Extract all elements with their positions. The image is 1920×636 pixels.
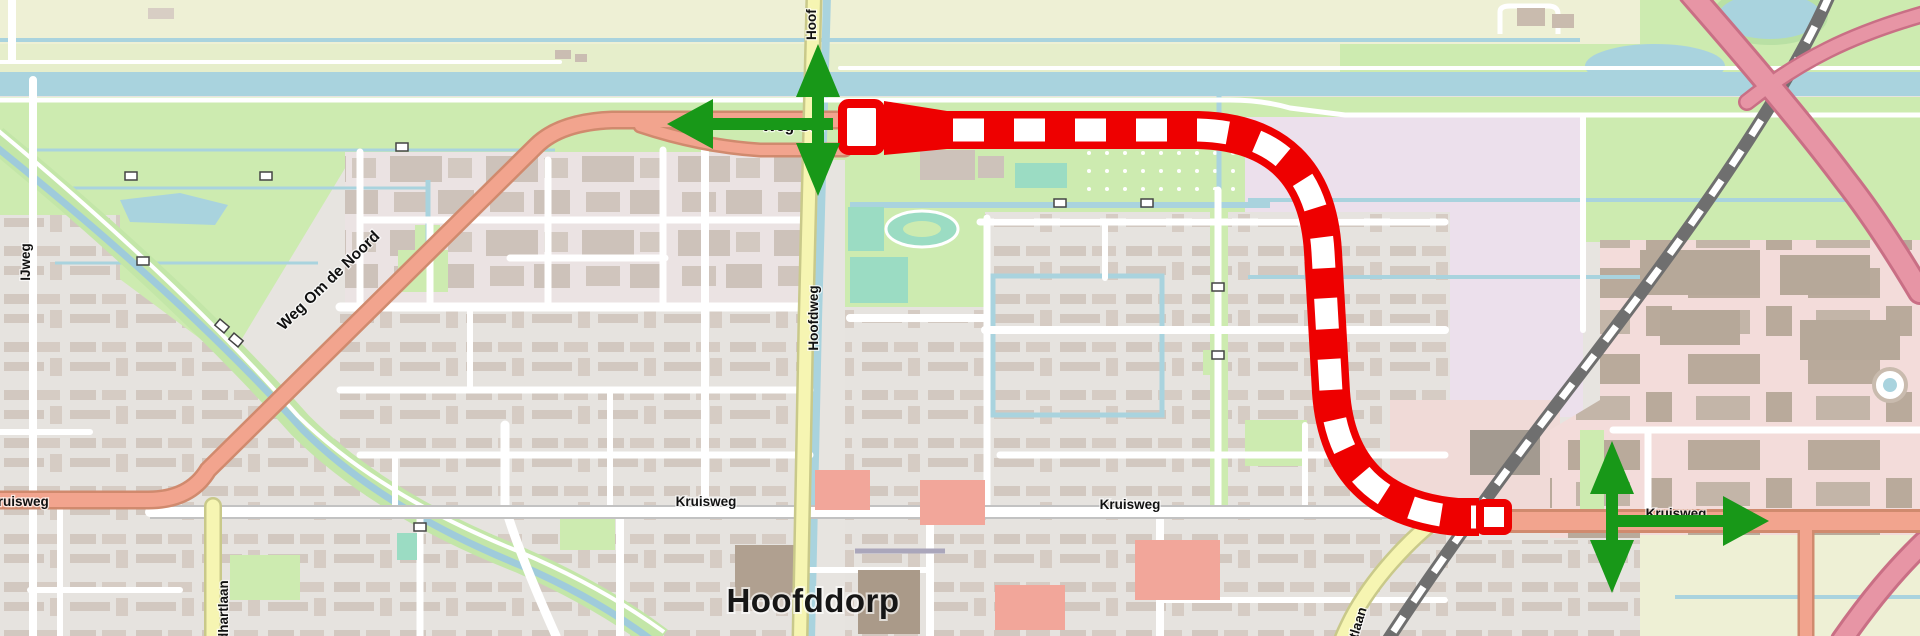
road-label-goedhartlaan: dhartlaan xyxy=(216,580,231,636)
map-canvas[interactable]: Hoof Hoofdweg IJweg Weg Om de Noord Weg … xyxy=(0,0,1920,636)
city-label: Hoofddorp xyxy=(726,582,899,619)
road-label-kruisweg-center-1: Kruisweg xyxy=(676,494,737,509)
map-svg: Hoof Hoofdweg IJweg Weg Om de Noord Weg … xyxy=(0,0,1920,636)
road-label-kruisweg-west: Kruisweg xyxy=(0,494,49,509)
closure-end-cap xyxy=(1480,503,1508,531)
closure-start-cap xyxy=(843,104,881,151)
road-label-hoofdweg-top: Hoof xyxy=(804,9,819,40)
road-label-hoofdweg: Hoofdweg xyxy=(806,285,821,350)
road-label-ijweg: IJweg xyxy=(18,243,33,281)
road-label-kruisweg-center-2: Kruisweg xyxy=(1100,497,1161,512)
